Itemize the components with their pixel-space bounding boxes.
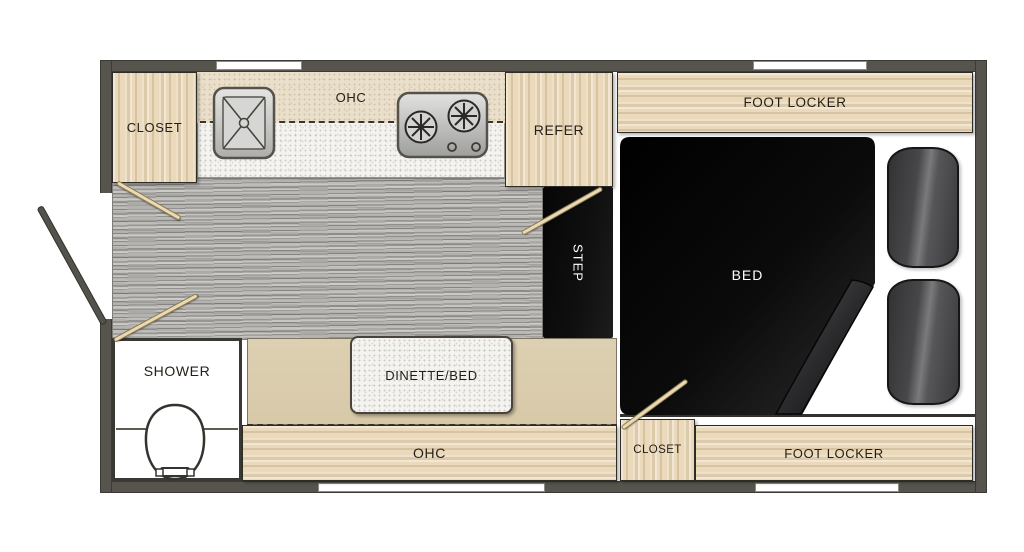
entry-door-opening bbox=[100, 193, 112, 319]
foot-locker-top: FOOT LOCKER bbox=[617, 72, 973, 133]
wall-right bbox=[975, 60, 987, 493]
foot-locker-bottom-label: FOOT LOCKER bbox=[784, 446, 884, 461]
main-floor bbox=[112, 178, 543, 340]
foot-locker-bottom: FOOT LOCKER bbox=[695, 425, 973, 481]
window-bottom-left bbox=[318, 483, 545, 492]
sink-icon bbox=[212, 86, 276, 160]
shower-label: SHOWER bbox=[144, 363, 211, 379]
step-label: STEP bbox=[571, 244, 586, 282]
window-bottom-right bbox=[755, 483, 899, 492]
ohc-bottom-cabinet: OHC bbox=[242, 425, 617, 481]
bed-area: BED bbox=[620, 137, 875, 413]
closet-rear: CLOSET bbox=[620, 419, 695, 481]
refer-label: REFER bbox=[534, 122, 584, 138]
window-top-right bbox=[753, 61, 867, 70]
bed-cushion-top bbox=[887, 147, 959, 268]
dinette-bed-label: DINETTE/BED bbox=[385, 368, 478, 383]
closet-rear-label: CLOSET bbox=[633, 444, 681, 456]
step-well: STEP bbox=[543, 187, 613, 338]
stove-icon bbox=[396, 91, 489, 159]
floorplan-canvas: OHC bbox=[0, 0, 1024, 552]
closet-front-label: CLOSET bbox=[127, 120, 183, 135]
closet-front: CLOSET bbox=[112, 72, 197, 183]
burner-left bbox=[406, 112, 437, 143]
bed-label: BED bbox=[732, 267, 764, 283]
ohc-kitchen-label: OHC bbox=[336, 90, 367, 105]
entry-door bbox=[36, 205, 107, 326]
foot-locker-top-label: FOOT LOCKER bbox=[743, 95, 846, 110]
burner-right bbox=[449, 101, 480, 132]
refrigerator: REFER bbox=[505, 72, 613, 187]
window-top-left bbox=[216, 61, 302, 70]
toilet-icon bbox=[141, 402, 209, 482]
dinette-table: DINETTE/BED bbox=[350, 336, 513, 414]
bed-cushion-bottom bbox=[887, 279, 960, 405]
ohc-bottom-label: OHC bbox=[413, 445, 446, 461]
